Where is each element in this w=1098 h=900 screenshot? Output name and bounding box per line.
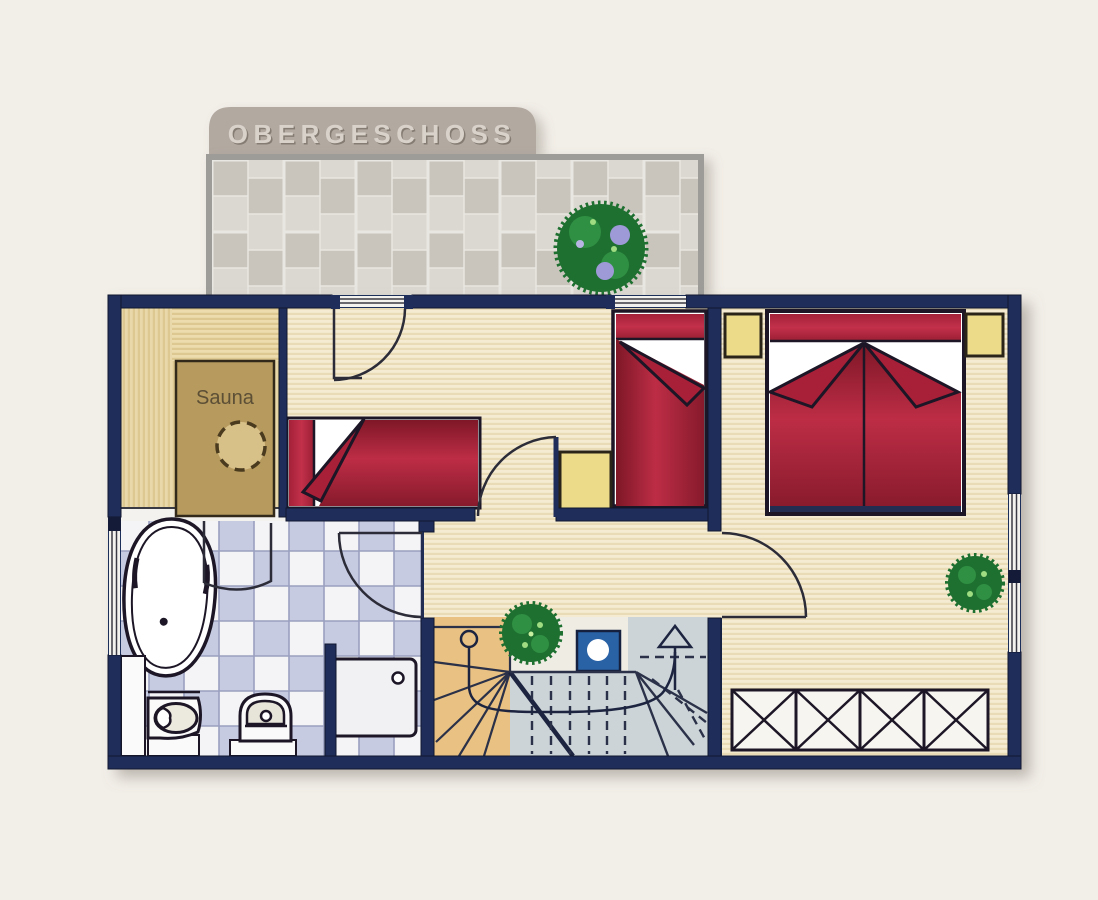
svg-text:OBERGESCHOSS: OBERGESCHOSS [228, 119, 517, 149]
svg-text:Sauna: Sauna [196, 387, 255, 409]
